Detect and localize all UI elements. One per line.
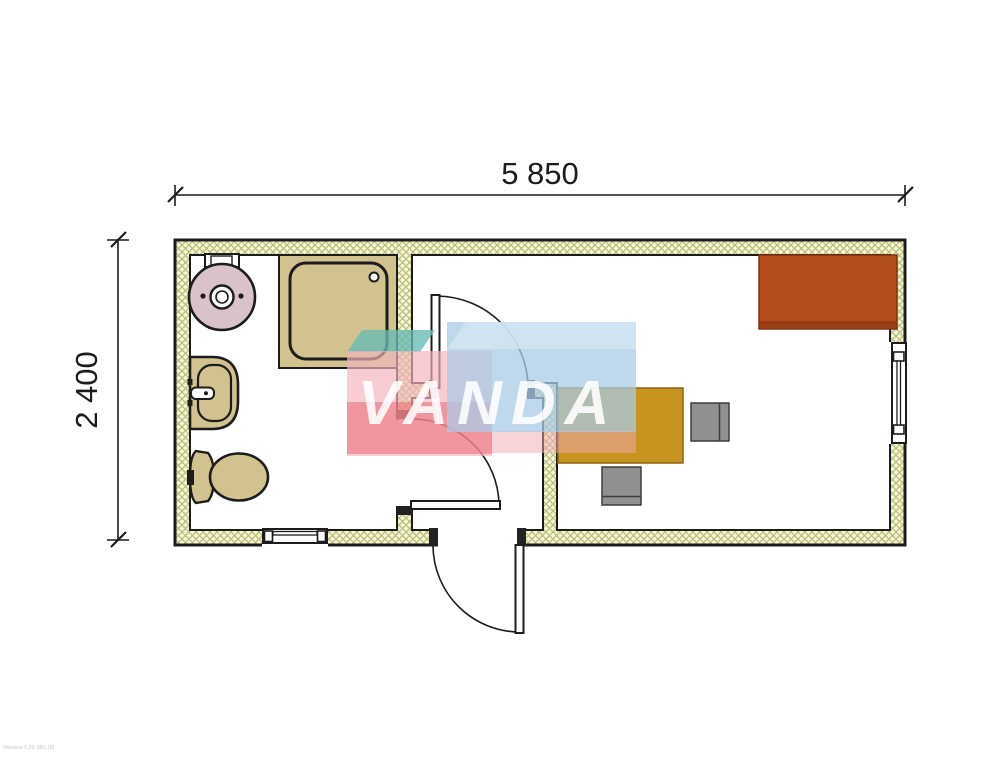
entrance-door-opening bbox=[438, 527, 518, 548]
watermark-top-face-teal bbox=[347, 330, 435, 352]
entrance-door-leaf bbox=[516, 545, 524, 633]
dimension-height-label: 2 400 bbox=[69, 351, 104, 429]
office-window bbox=[889, 342, 907, 444]
dimension-width-label: 5 850 bbox=[501, 156, 579, 191]
corner-note: Window 0,55 (85) (8) bbox=[3, 745, 55, 751]
entrance-door-jamb-right bbox=[517, 528, 526, 546]
toilet bbox=[187, 451, 268, 503]
cabinet bbox=[759, 255, 897, 329]
bathroom-window bbox=[262, 527, 328, 547]
washbasin bbox=[188, 357, 239, 429]
floor-plan-page: 5 850 2 400 bbox=[0, 0, 1000, 757]
watermark-logo: VANDA bbox=[347, 322, 636, 456]
watermark-top-face-blue bbox=[447, 322, 636, 349]
floor-plan-drawing: 5 850 2 400 bbox=[0, 0, 1000, 757]
dimension-left bbox=[107, 232, 129, 547]
chair-right bbox=[691, 403, 729, 441]
chair-front bbox=[602, 467, 641, 505]
entrance-door-jamb-left bbox=[429, 528, 438, 546]
entrance-door-swing-arc bbox=[433, 546, 520, 632]
faucet bbox=[191, 388, 214, 400]
bathroom-door-leaf bbox=[411, 501, 500, 509]
watermark-text: VANDA bbox=[358, 369, 619, 438]
shower-drain bbox=[370, 273, 379, 282]
